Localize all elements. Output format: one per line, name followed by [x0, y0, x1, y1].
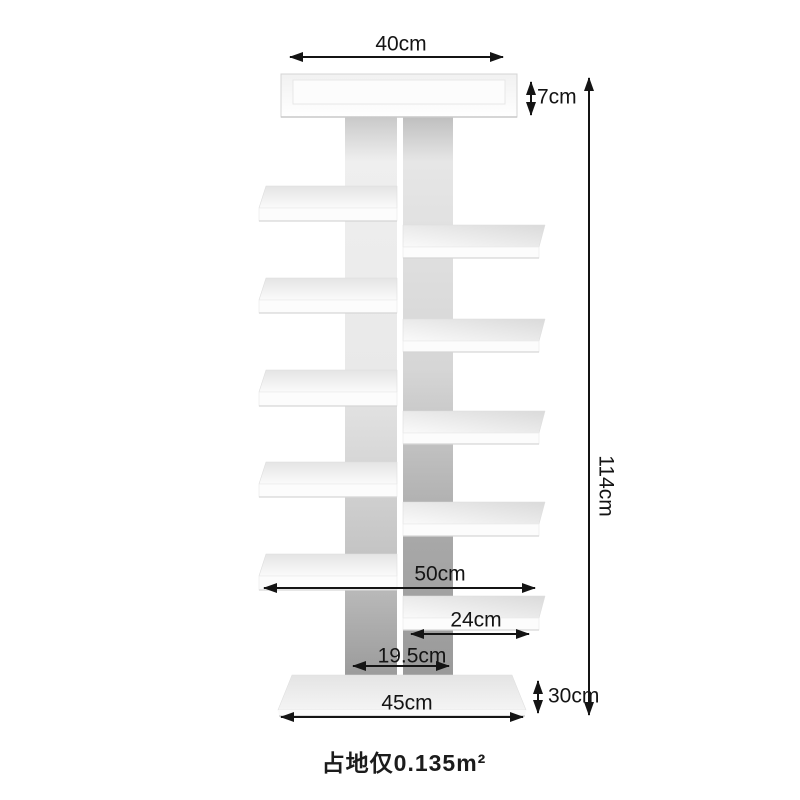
dim-label-base-depth: 30cm: [548, 686, 599, 707]
dim-label-top-width: 40cm: [375, 34, 426, 55]
dim-label-branch-length: 24cm: [450, 610, 501, 631]
dim-label-base-width: 45cm: [381, 693, 432, 714]
left-shelf: [259, 462, 397, 497]
dim-label-shelf-span: 50cm: [414, 564, 465, 585]
left-shelf: [259, 554, 397, 590]
right-shelf: [403, 411, 545, 444]
trunk-right-panel: [403, 117, 453, 676]
product-dimension-image: 40cm 7cm 114cm 50cm 24cm 19.5cm 45cm 30c…: [0, 0, 800, 800]
left-shelf: [259, 186, 397, 221]
bookshelf-illustration: [0, 0, 800, 800]
top-tray: [281, 74, 517, 117]
dim-label-trunk-width: 19.5cm: [378, 646, 447, 667]
right-shelf: [403, 225, 545, 258]
dim-label-total-height: 114cm: [596, 455, 617, 516]
dim-label-tray-height: 7cm: [537, 87, 577, 108]
right-shelf: [403, 319, 545, 352]
caption-floor-area: 占地仅0.135m²: [322, 744, 487, 778]
left-shelf: [259, 370, 397, 406]
right-shelf: [403, 502, 545, 536]
left-shelf: [259, 278, 397, 313]
